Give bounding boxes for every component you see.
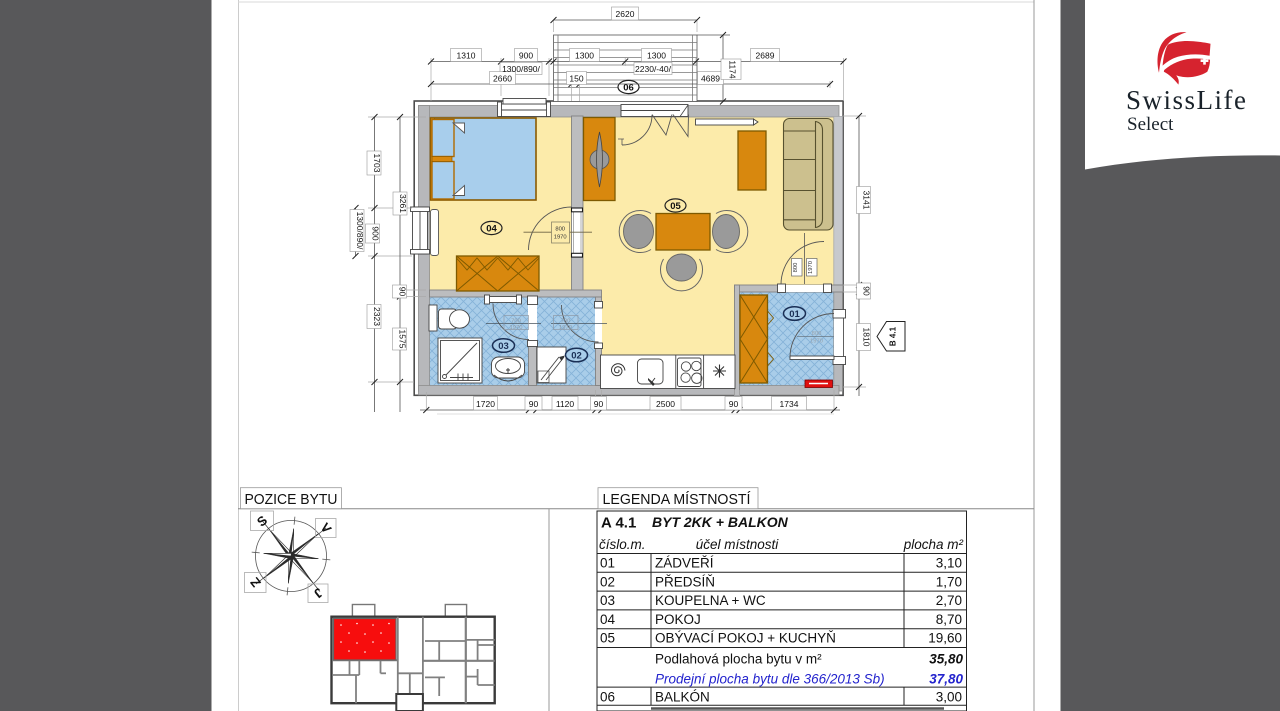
svg-text:02: 02 (571, 351, 582, 362)
svg-text:2,70: 2,70 (936, 593, 962, 608)
svg-text:1300/890/: 1300/890/ (502, 64, 540, 74)
svg-text:04: 04 (486, 224, 497, 235)
svg-text:37,80: 37,80 (929, 672, 963, 687)
svg-text:1300: 1300 (575, 51, 594, 61)
svg-text:Podlahová plocha bytu v m²: Podlahová plocha bytu v m² (655, 652, 822, 667)
svg-text:90: 90 (729, 399, 739, 409)
svg-text:2323: 2323 (372, 307, 382, 326)
svg-text:B 4.1: B 4.1 (889, 326, 898, 346)
svg-text:1810: 1810 (862, 328, 872, 347)
svg-text:LEGENDA MÍSTNOSTÍ: LEGENDA MÍSTNOSTÍ (603, 491, 752, 508)
svg-text:ZÁDVEŘÍ: ZÁDVEŘÍ (655, 556, 714, 571)
svg-text:1575: 1575 (398, 330, 408, 349)
svg-text:3,10: 3,10 (936, 556, 962, 571)
svg-text:900: 900 (371, 226, 381, 240)
svg-text:06: 06 (600, 690, 615, 705)
svg-text:05: 05 (670, 201, 681, 212)
svg-text:plocha m²: plocha m² (903, 537, 964, 552)
svg-text:SwissLife: SwissLife (1126, 85, 1248, 115)
svg-text:19,60: 19,60 (928, 631, 962, 646)
svg-text:2660: 2660 (493, 74, 512, 84)
svg-text:1300: 1300 (647, 51, 666, 61)
svg-text:3,00: 3,00 (936, 690, 962, 705)
svg-text:2689: 2689 (756, 51, 775, 61)
svg-text:03: 03 (600, 593, 615, 608)
svg-text:1720: 1720 (476, 399, 495, 409)
svg-text:BYT 2KK + BALKON: BYT 2KK + BALKON (652, 514, 789, 530)
svg-text:8,70: 8,70 (936, 612, 962, 627)
svg-text:A 4.1: A 4.1 (601, 515, 636, 532)
svg-text:1970: 1970 (810, 339, 823, 345)
svg-text:700: 700 (561, 319, 571, 325)
svg-text:BALKÓN: BALKÓN (655, 690, 710, 705)
svg-text:1310: 1310 (457, 51, 476, 61)
svg-text:800: 800 (812, 331, 822, 337)
svg-text:01: 01 (789, 309, 800, 320)
svg-text:Select: Select (1127, 114, 1174, 135)
svg-text:1734: 1734 (780, 399, 799, 409)
svg-text:150: 150 (569, 74, 583, 84)
svg-text:PŘEDSÍŇ: PŘEDSÍŇ (655, 574, 715, 589)
svg-text:2500: 2500 (656, 399, 675, 409)
svg-text:1300/890/: 1300/890/ (355, 212, 365, 250)
svg-text:04: 04 (600, 612, 616, 627)
svg-text:03: 03 (498, 341, 509, 352)
svg-text:3141: 3141 (862, 191, 872, 210)
svg-text:Prodejní plocha bytu dle 366/2: Prodejní plocha bytu dle 366/2013 Sb) (655, 672, 885, 687)
svg-text:1970: 1970 (808, 261, 814, 274)
svg-text:05: 05 (600, 631, 615, 646)
svg-text:90: 90 (862, 286, 872, 296)
svg-text:1970: 1970 (510, 325, 523, 331)
svg-text:KOUPELNA + WC: KOUPELNA + WC (655, 593, 766, 608)
svg-text:900: 900 (519, 51, 533, 61)
svg-text:1120: 1120 (556, 399, 575, 409)
svg-text:02: 02 (600, 574, 615, 589)
svg-text:800: 800 (793, 263, 799, 273)
svg-text:účel místnosti: účel místnosti (696, 537, 780, 552)
svg-text:OBÝVACÍ POKOJ + KUCHYŇ: OBÝVACÍ POKOJ + KUCHYŇ (655, 631, 836, 646)
svg-text:2230/-40/: 2230/-40/ (635, 64, 672, 74)
svg-text:POKOJ: POKOJ (655, 612, 701, 627)
svg-text:90: 90 (398, 287, 408, 297)
svg-text:90: 90 (529, 399, 539, 409)
svg-text:01: 01 (600, 556, 615, 571)
svg-text:800: 800 (555, 227, 565, 233)
svg-text:1970: 1970 (559, 325, 572, 331)
svg-text:1970: 1970 (554, 235, 567, 241)
svg-text:4689: 4689 (701, 74, 720, 84)
svg-text:90: 90 (594, 399, 604, 409)
svg-text:číslo.m.: číslo.m. (599, 537, 646, 552)
svg-text:1,70: 1,70 (936, 574, 962, 589)
svg-text:700: 700 (511, 319, 521, 325)
svg-text:2620: 2620 (616, 9, 635, 19)
svg-text:POZICE BYTU: POZICE BYTU (245, 491, 338, 508)
svg-text:1174: 1174 (728, 60, 738, 79)
svg-text:1703: 1703 (372, 154, 382, 173)
svg-text:35,80: 35,80 (929, 652, 963, 667)
svg-text:3261: 3261 (398, 194, 408, 213)
